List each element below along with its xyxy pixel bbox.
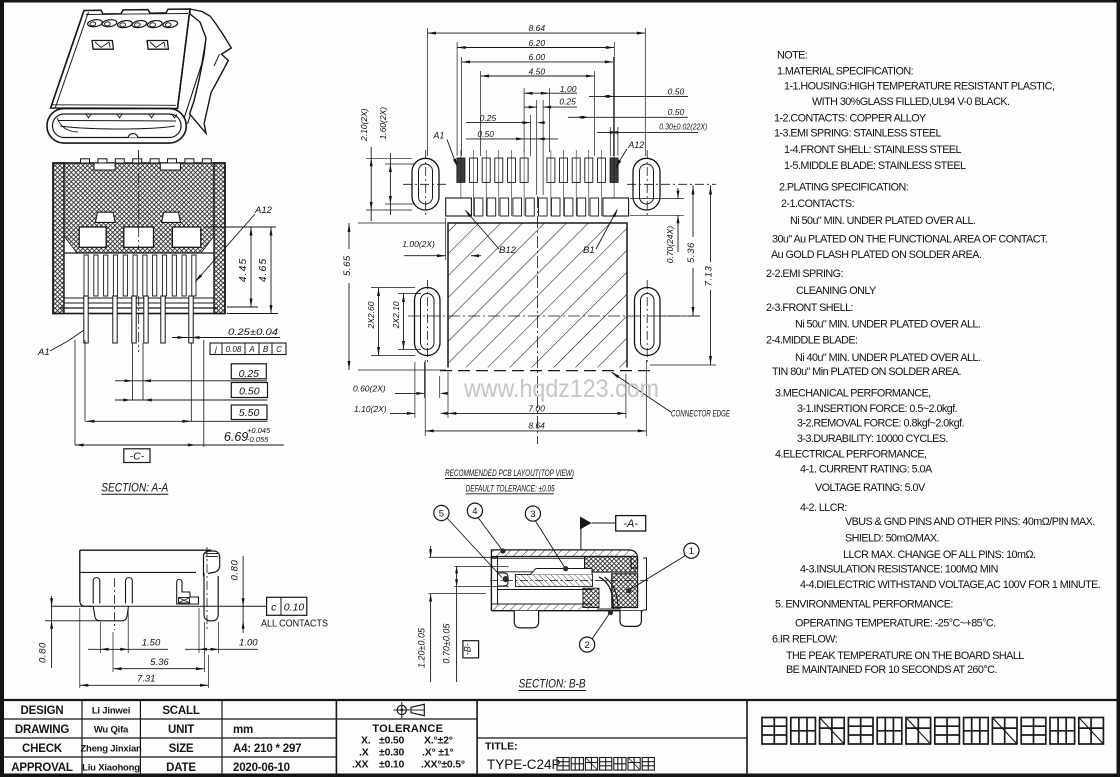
svg-text:Zheng Jinxian: Zheng Jinxian — [80, 744, 142, 755]
svg-text:1-4.FRONT SHELL: STAINLESS STE: 1-4.FRONT SHELL: STAINLESS STEEL — [784, 144, 962, 156]
svg-text:.XX°±0.5°: .XX°±0.5° — [421, 759, 465, 771]
svg-text:1.20±0.05: 1.20±0.05 — [417, 627, 427, 668]
svg-text:CHECK: CHECK — [22, 743, 63, 755]
svg-text:2020-06-10: 2020-06-10 — [233, 762, 290, 774]
svg-text:B: B — [263, 345, 269, 354]
svg-text:7.13: 7.13 — [704, 265, 715, 286]
svg-text:5.50: 5.50 — [239, 407, 260, 419]
svg-text:DEFAULT TOLERANCE: ±0.05: DEFAULT TOLERANCE: ±0.05 — [466, 483, 555, 494]
svg-text:1.50: 1.50 — [142, 638, 161, 649]
svg-text:.XX: .XX — [352, 759, 369, 771]
svg-text:SECTION: A-A: SECTION: A-A — [101, 481, 168, 495]
svg-text:RECOMMENDED PCB LAYOUT(TOP VIE: RECOMMENDED PCB LAYOUT(TOP VIEW) — [445, 468, 574, 479]
svg-text:SIZE: SIZE — [169, 743, 194, 755]
svg-text:1.60(2X): 1.60(2X) — [378, 107, 388, 140]
svg-text:2X2.60: 2X2.60 — [366, 301, 376, 329]
svg-text:0.80: 0.80 — [230, 559, 241, 580]
svg-text:1.10(2X): 1.10(2X) — [354, 404, 387, 414]
svg-text:4.50: 4.50 — [529, 66, 546, 76]
svg-text:7.31: 7.31 — [137, 674, 156, 685]
svg-text:CONNECTOR EDGE: CONNECTOR EDGE — [671, 409, 731, 419]
svg-text:4.65: 4.65 — [257, 258, 269, 282]
svg-text:±0.30: ±0.30 — [379, 747, 405, 759]
svg-text:TOLERANCE: TOLERANCE — [372, 723, 443, 735]
svg-text:6.69: 6.69 — [224, 430, 248, 444]
svg-text:X.°±2°: X.°±2° — [424, 735, 453, 747]
svg-text:1.00: 1.00 — [239, 638, 258, 649]
svg-text:4.ELECTRICAL PERFORMANCE,: 4.ELECTRICAL PERFORMANCE, — [775, 448, 927, 460]
svg-text:VBUS & GND PINS AND OTHER PINS: VBUS & GND PINS AND OTHER PINS: 40mΩ/PIN… — [845, 516, 1095, 528]
svg-text:0.50: 0.50 — [239, 386, 260, 398]
svg-text:0.50: 0.50 — [477, 129, 494, 139]
svg-text:30u" Au PLATED ON THE FUNCTION: 30u" Au PLATED ON THE FUNCTIONAL AREA OF… — [772, 234, 1048, 246]
svg-text:0.70±0.05: 0.70±0.05 — [442, 623, 452, 664]
svg-text:A12: A12 — [254, 205, 273, 216]
svg-text:5.36: 5.36 — [150, 657, 169, 668]
svg-text:4-3.INSULATION RESISTANCE: 100: 4-3.INSULATION RESISTANCE: 100MΩ MIN — [800, 564, 998, 576]
svg-text:1: 1 — [689, 546, 694, 557]
svg-text:1.00: 1.00 — [560, 84, 577, 94]
svg-text:-C-: -C- — [130, 451, 145, 463]
svg-text:VOLTAGE RATING: 5.0V: VOLTAGE RATING: 5.0V — [815, 482, 926, 494]
svg-text:A1: A1 — [432, 130, 444, 140]
svg-text:1-1.HOUSING:HIGH TEMPERATURE R: 1-1.HOUSING:HIGH TEMPERATURE RESISTANT P… — [784, 81, 1055, 93]
svg-text:B12: B12 — [499, 245, 517, 256]
svg-text:4: 4 — [472, 506, 477, 517]
svg-text:Ni 50u" MIN. UNDER PLATED OVER: Ni 50u" MIN. UNDER PLATED OVER ALL. — [795, 318, 981, 330]
svg-text:A: A — [248, 345, 254, 354]
svg-text:-A-: -A- — [623, 518, 638, 530]
svg-text:-0.055: -0.055 — [247, 435, 269, 444]
svg-text:.X° ±1°: .X° ±1° — [422, 747, 453, 759]
svg-text:0.80: 0.80 — [38, 642, 49, 663]
svg-text:A12: A12 — [627, 140, 644, 150]
svg-text:Wu Qifa: Wu Qifa — [94, 725, 129, 736]
svg-text:1-5.MIDDLE BLADE: STAINLESS ST: 1-5.MIDDLE BLADE: STAINLESS STEEL — [784, 160, 966, 172]
svg-text:4.45: 4.45 — [237, 258, 249, 282]
svg-text:LLCR MAX. CHANGE OF ALL PINS:: LLCR MAX. CHANGE OF ALL PINS: 10mΩ. — [843, 549, 1036, 561]
svg-text:UNIT: UNIT — [168, 724, 194, 736]
svg-text:3.MECHANICAL PERFORMANCE,: 3.MECHANICAL PERFORMANCE, — [775, 388, 931, 400]
svg-text:SECTION: B-B: SECTION: B-B — [519, 677, 586, 691]
svg-text:6.00: 6.00 — [529, 52, 546, 62]
svg-text:THE PEAK TEMPERATURE ON THE BO: THE PEAK TEMPERATURE ON THE BOARD SHALL — [786, 650, 1024, 662]
svg-text:4-4.DIELECTRIC WITHSTAND VOLTA: 4-4.DIELECTRIC WITHSTAND VOLTAGE,AC 100V… — [800, 579, 1101, 591]
svg-text:mm: mm — [233, 724, 253, 736]
svg-text:Ni 40u" MIN. UNDER PLATED OVER: Ni 40u" MIN. UNDER PLATED OVER ALL. — [795, 352, 981, 364]
svg-text:1.00(2X): 1.00(2X) — [402, 239, 435, 249]
svg-text:APPROVAL: APPROVAL — [11, 762, 73, 774]
svg-text:6.20: 6.20 — [529, 38, 546, 48]
svg-text:Li Jinwei: Li Jinwei — [92, 706, 130, 717]
svg-text:C: C — [276, 345, 282, 354]
svg-text:Liu Xiaohong: Liu Xiaohong — [82, 763, 140, 774]
svg-text:SHIELD: 50mΩ/MAX.: SHIELD: 50mΩ/MAX. — [845, 532, 940, 544]
svg-text:3-2.REMOVAL FORCE: 0.8kgf~2.0k: 3-2.REMOVAL FORCE: 0.8kgf~2.0kgf. — [797, 418, 965, 430]
svg-text:DRAWING: DRAWING — [15, 724, 69, 736]
svg-text:7.00: 7.00 — [528, 404, 545, 414]
svg-text:2-3.FRONT SHELL:: 2-3.FRONT SHELL: — [766, 302, 854, 314]
svg-text:2X2.10: 2X2.10 — [391, 301, 401, 329]
svg-text:8.64: 8.64 — [528, 421, 545, 431]
svg-text:3-3.DURABILITY: 10000 CYCLES.: 3-3.DURABILITY: 10000 CYCLES. — [797, 433, 948, 445]
svg-text:Au GOLD FLASH PLATED ON SOLDE: Au GOLD FLASH PLATED ON SOLDER AREA. — [771, 249, 982, 261]
svg-text:±0.50: ±0.50 — [379, 735, 405, 747]
svg-text:WITH 30%GLASS FILLED,UL94 V-0: WITH 30%GLASS FILLED,UL94 V-0 BLACK. — [812, 96, 1010, 108]
svg-text:DATE: DATE — [166, 762, 196, 774]
svg-text:0.50: 0.50 — [668, 86, 685, 96]
svg-text:5.65: 5.65 — [342, 255, 353, 276]
svg-text:2.10(2X): 2.10(2X) — [359, 108, 369, 142]
svg-text:0.60(2X): 0.60(2X) — [353, 384, 386, 394]
svg-text:2-4.MIDDLE BLADE:: 2-4.MIDDLE BLADE: — [766, 335, 858, 347]
svg-text:8.64: 8.64 — [529, 23, 546, 33]
svg-text:ALL CONTACTS: ALL CONTACTS — [261, 618, 328, 630]
svg-text:CLEANING ONLY: CLEANING ONLY — [796, 285, 876, 297]
svg-text:0.25: 0.25 — [559, 97, 576, 107]
svg-text:5. ENVIRONMENTAL PERFORMANCE:: 5. ENVIRONMENTAL PERFORMANCE: — [775, 598, 953, 610]
svg-text:BE MAINTAINED FOR 10 SECONDS A: BE MAINTAINED FOR 10 SECONDS AT 260°C. — [786, 664, 997, 676]
svg-text:±0.10: ±0.10 — [379, 759, 405, 771]
svg-text:0.10: 0.10 — [284, 602, 305, 614]
svg-text:DESIGN: DESIGN — [21, 705, 64, 717]
svg-text:A4: 210 * 297: A4: 210 * 297 — [233, 743, 301, 755]
svg-text:5.36: 5.36 — [686, 242, 697, 263]
svg-text:www.hqdz123.com: www.hqdz123.com — [463, 375, 659, 403]
svg-text:OPERATING TEMPERATURE: -25°C~+: OPERATING TEMPERATURE: -25°C~+85°C. — [795, 617, 996, 629]
svg-text:c: c — [271, 602, 277, 614]
svg-text:1.MATERIAL SPECIFICATION:: 1.MATERIAL SPECIFICATION: — [777, 66, 914, 78]
svg-text:0.50: 0.50 — [668, 107, 685, 117]
svg-text:1-3.EMI SPRING: STAINLESS STEE: 1-3.EMI SPRING: STAINLESS STEEL — [774, 128, 941, 140]
svg-text:5: 5 — [439, 509, 444, 520]
svg-text:0.70(24X): 0.70(24X) — [665, 226, 675, 263]
svg-text:TITLE:: TITLE: — [485, 741, 518, 753]
svg-text:0.25±0.04: 0.25±0.04 — [228, 327, 278, 338]
svg-text:3: 3 — [530, 509, 535, 520]
svg-text:B1: B1 — [583, 245, 595, 256]
svg-text:0.25: 0.25 — [239, 368, 260, 380]
svg-text:4-2. LLCR:: 4-2. LLCR: — [800, 502, 847, 514]
svg-text:2.PLATING SPECIFICATION:: 2.PLATING SPECIFICATION: — [779, 182, 909, 194]
svg-text:6.IR REFLOW:: 6.IR REFLOW: — [772, 634, 838, 646]
svg-text:2-2.EMI SPRING:: 2-2.EMI SPRING: — [766, 268, 843, 280]
svg-text:1-2.CONTACTS: COPPER ALLOY: 1-2.CONTACTS: COPPER ALLOY — [774, 112, 926, 124]
svg-text:0.30±0.02(22X): 0.30±0.02(22X) — [659, 122, 707, 132]
svg-text:2: 2 — [584, 640, 589, 651]
svg-text:0.08: 0.08 — [226, 345, 242, 354]
svg-text:SCALL: SCALL — [162, 705, 200, 717]
svg-text:NOTE:: NOTE: — [777, 49, 808, 61]
svg-text:2-1.CONTACTS:: 2-1.CONTACTS: — [781, 198, 855, 210]
svg-text:TYPE-C24P: TYPE-C24P — [487, 757, 561, 772]
svg-text:4-1. CURRENT RATING: 5.0A: 4-1. CURRENT RATING: 5.0A — [800, 464, 933, 476]
svg-text:-B-: -B- — [463, 643, 473, 655]
svg-text:X.: X. — [361, 735, 371, 747]
svg-text:Ni 50u" MIN. UNDER PLATED OVER: Ni 50u" MIN. UNDER PLATED OVER ALL. — [790, 215, 976, 227]
svg-text:TIN 80u" Min PLATED ON SOLDER: TIN 80u" Min PLATED ON SOLDER AREA. — [772, 366, 962, 378]
svg-text:+0.045: +0.045 — [247, 426, 271, 435]
svg-text:0.25: 0.25 — [480, 113, 497, 123]
svg-text:A1: A1 — [37, 347, 50, 358]
svg-text:3-1.INSERTION FORCE: 0.5~2.0kg: 3-1.INSERTION FORCE: 0.5~2.0kgf. — [797, 403, 958, 415]
svg-text:.X: .X — [359, 747, 369, 759]
